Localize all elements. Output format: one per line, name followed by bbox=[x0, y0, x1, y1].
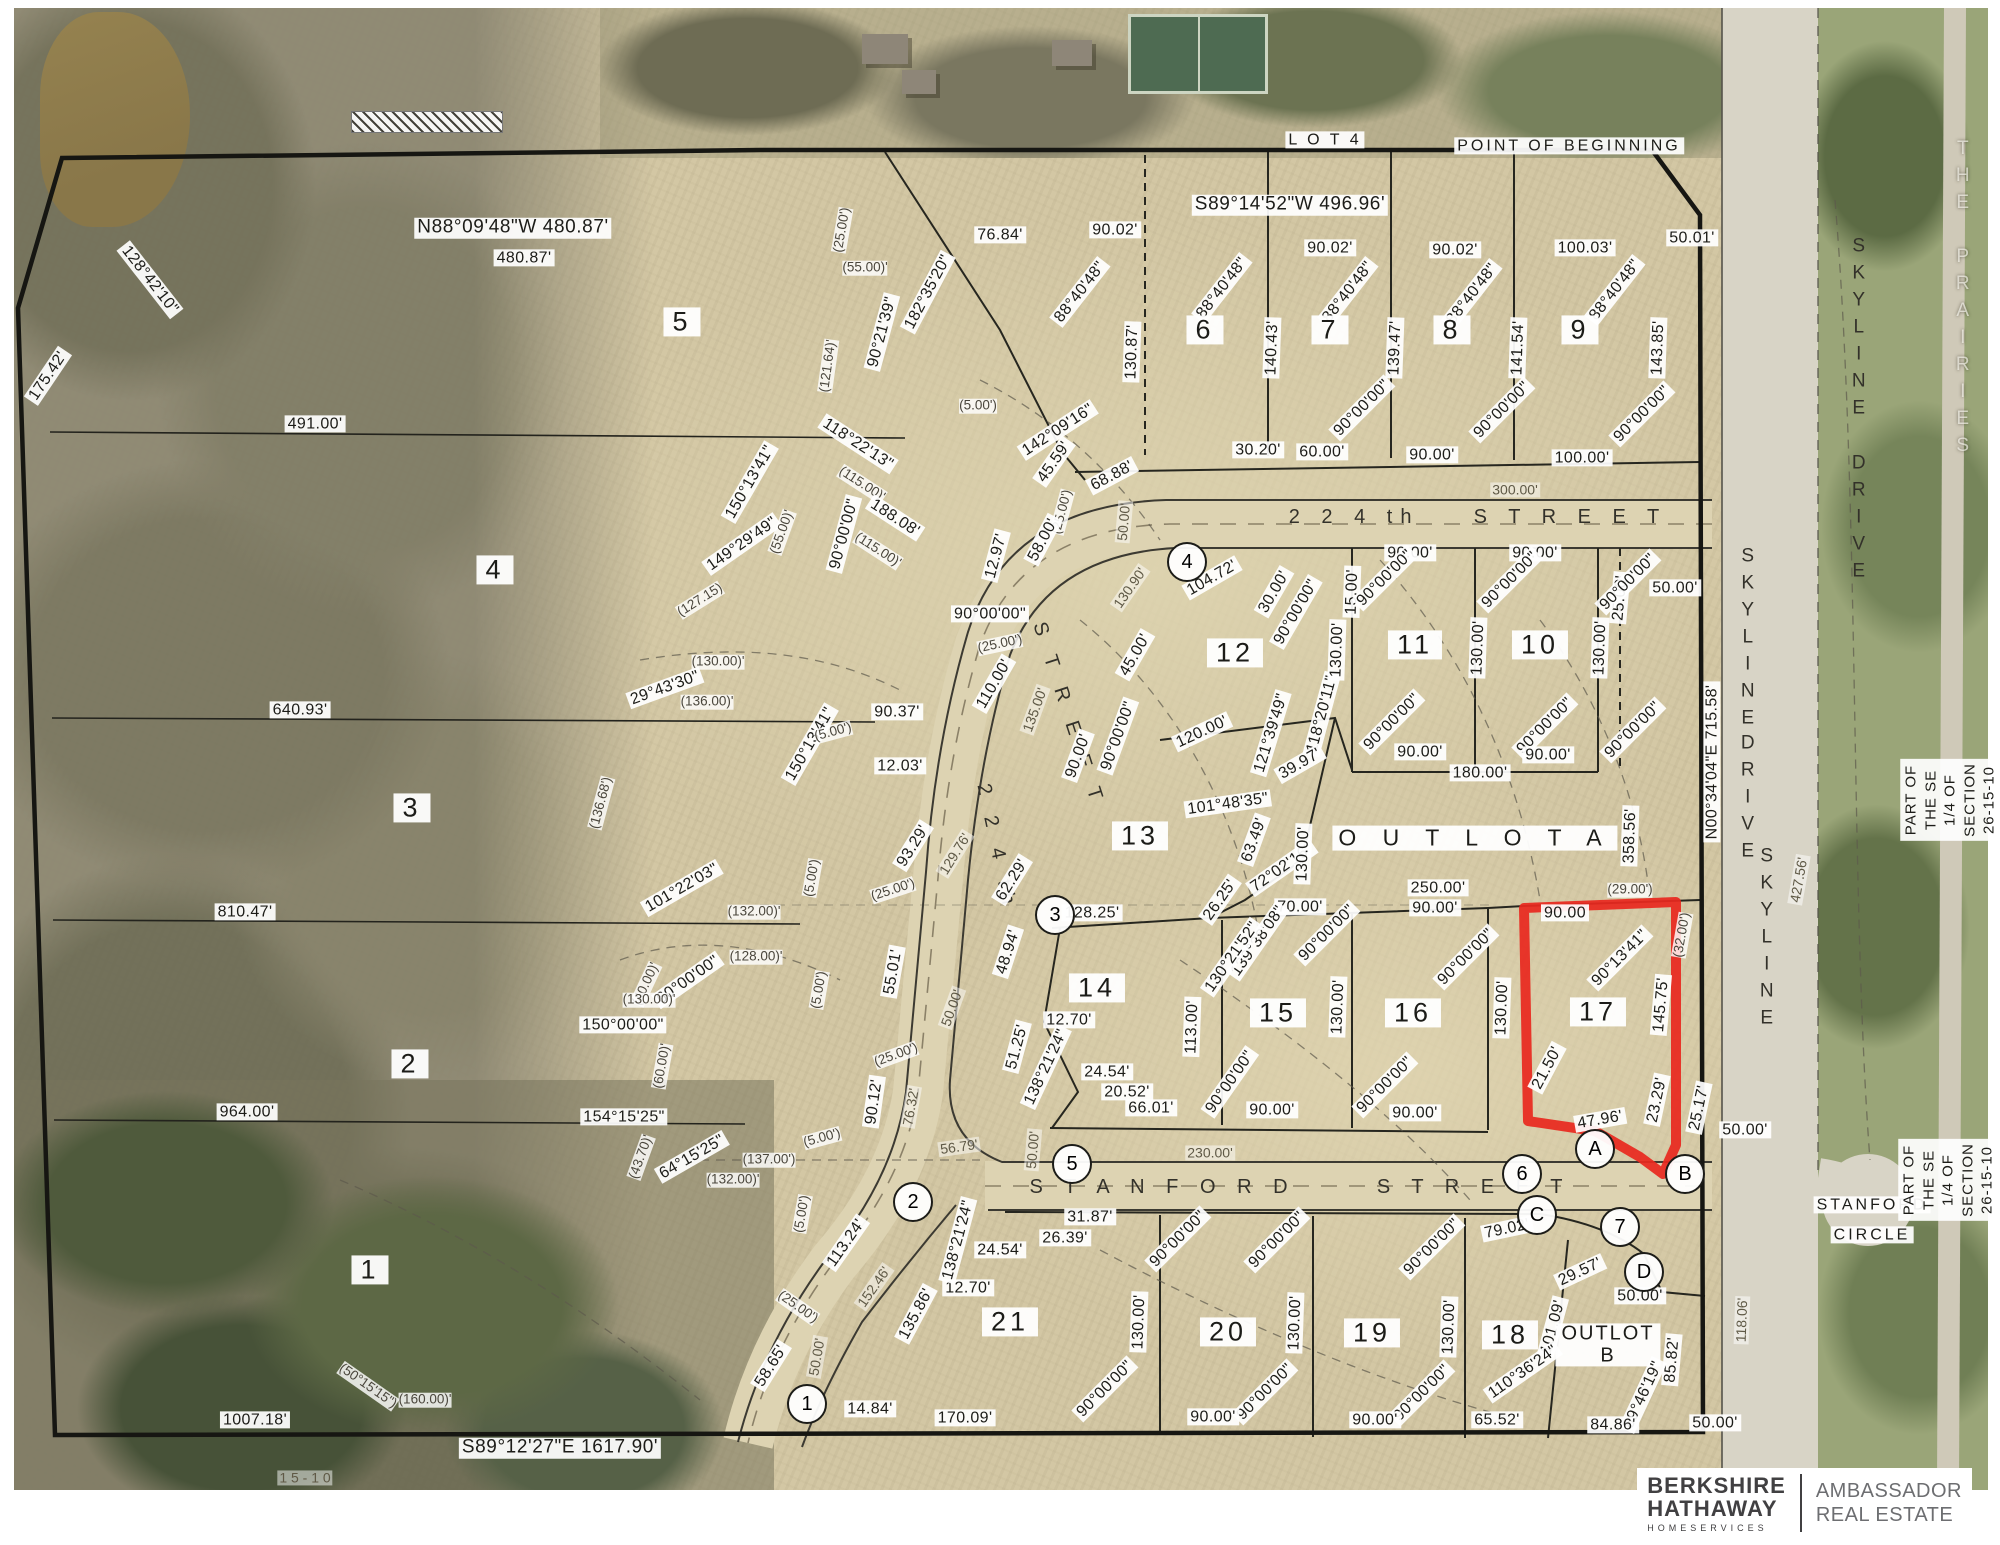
dimension-label: 100.00' bbox=[1552, 449, 1613, 466]
reference-dimension-label: (5.00') bbox=[959, 399, 997, 414]
dimension-label: 60.00' bbox=[1296, 443, 1348, 460]
dimension-label: 130.00' bbox=[1328, 976, 1347, 1037]
dimension-label: 31.87' bbox=[1064, 1208, 1116, 1225]
dimension-label: 90.00' bbox=[1522, 746, 1574, 763]
curve-marker-A: A bbox=[1575, 1129, 1615, 1169]
street-name: S T A N F O R D S T R E E T bbox=[1030, 1177, 1571, 1199]
lot-number: 7 bbox=[1311, 315, 1348, 344]
dimension-label: 491.00' bbox=[285, 415, 346, 432]
dimension-label: 90.02' bbox=[1429, 241, 1481, 258]
curve-marker-3: 3 bbox=[1035, 895, 1075, 935]
lot-number: 10 bbox=[1512, 630, 1568, 659]
bearing-label: S89°14'52"W 496.96' bbox=[1192, 195, 1388, 216]
lot-number: 2 bbox=[391, 1049, 428, 1078]
reference-dimension-label: (128.00)' bbox=[730, 950, 783, 965]
dimension-label: 14.84' bbox=[844, 1400, 896, 1417]
lot-number: 9 bbox=[1561, 315, 1598, 344]
dimension-label: 141.54' bbox=[1508, 317, 1527, 378]
curve-marker-6: 6 bbox=[1502, 1154, 1542, 1194]
faint-dimension-label: 1 5 - 1 0 bbox=[277, 1470, 332, 1485]
reference-dimension-label: (130.00)' bbox=[623, 993, 676, 1008]
map-annotation: CIRCLE bbox=[1831, 1226, 1914, 1243]
dimension-label: 20.52' bbox=[1101, 1083, 1153, 1100]
dimension-label: 130.00' bbox=[1285, 1292, 1304, 1353]
curve-marker-2: 2 bbox=[893, 1182, 933, 1222]
faint-dimension-label: 230.00' bbox=[1185, 1145, 1235, 1160]
lot-number: 16 bbox=[1385, 998, 1441, 1027]
map-annotation: L O T 4 bbox=[1285, 131, 1364, 148]
ambassador-real-estate-logo: AMBASSADOR REAL ESTATE bbox=[1816, 1479, 1962, 1527]
lot-number: 3 bbox=[393, 793, 430, 822]
dimension-label: 100.03' bbox=[1555, 239, 1616, 256]
faint-dimension-label: 118.06' bbox=[1734, 1296, 1751, 1345]
dimension-label: 130.00' bbox=[1468, 617, 1487, 678]
lot-number: 14 bbox=[1069, 973, 1125, 1002]
lot-number: 4 bbox=[476, 555, 513, 584]
dimension-label: 50.00' bbox=[1689, 1414, 1741, 1431]
dimension-label: 65.52' bbox=[1471, 1411, 1523, 1428]
dimension-label: 84.86' bbox=[1587, 1416, 1639, 1433]
logo-divider bbox=[1800, 1474, 1802, 1532]
dimension-label: 358.56' bbox=[1620, 805, 1639, 866]
curve-marker-B: B bbox=[1665, 1154, 1705, 1194]
reference-dimension-label: (55.00)' bbox=[842, 261, 887, 276]
logo-line1: BERKSHIRE bbox=[1647, 1474, 1786, 1497]
dimension-label: 12.03' bbox=[874, 757, 926, 774]
plat-map-stage: N88°09'48"W 480.87'480.87'S89°14'52"W 49… bbox=[0, 0, 2000, 1545]
dimension-label: 50.00' bbox=[1719, 1121, 1771, 1138]
outlot-label: OUTLOT B bbox=[1555, 1323, 1660, 1366]
dimension-label: 170.09' bbox=[935, 1409, 996, 1426]
dimension-label: 964.00' bbox=[217, 1103, 278, 1120]
curve-marker-C: C bbox=[1517, 1195, 1557, 1235]
dimension-label: 130.00' bbox=[1590, 617, 1609, 678]
section-label: PART OF THE SE 1/4 OF SECTION 26-15-10 bbox=[1898, 1139, 1998, 1221]
map-annotation: POINT OF BEGINNING bbox=[1454, 137, 1684, 154]
dimension-label: 12.70' bbox=[1043, 1011, 1095, 1028]
lot-number: 21 bbox=[982, 1307, 1038, 1336]
street-name-vertical: DRIVE bbox=[1737, 733, 1758, 868]
bearing-label: N88°09'48"W 480.87' bbox=[414, 218, 611, 239]
dimension-label: 30.20' bbox=[1232, 441, 1284, 458]
bearing-label: S89°12'27"E 1617.90' bbox=[459, 1438, 661, 1459]
dimension-label: 140.43' bbox=[1262, 317, 1281, 378]
street-name-vertical: SKYLINE bbox=[1737, 546, 1758, 735]
street-name-vertical: SKYLINE bbox=[1756, 846, 1777, 1035]
reference-dimension-label: (130.00)' bbox=[692, 655, 745, 670]
dimension-label: 113.00' bbox=[1182, 997, 1201, 1057]
dimension-label: 24.54' bbox=[974, 1241, 1026, 1258]
logo-right1: AMBASSADOR bbox=[1816, 1479, 1962, 1503]
lot-number: 8 bbox=[1433, 315, 1470, 344]
lot-number: 5 bbox=[663, 307, 700, 336]
dimension-label: 24.54' bbox=[1081, 1063, 1133, 1080]
lot-number: 11 bbox=[1388, 630, 1442, 659]
reference-dimension-label: (29.00') bbox=[1607, 883, 1652, 898]
dimension-label: 90.00' bbox=[1187, 1408, 1239, 1425]
street-name-vertical: SKYLINE bbox=[1848, 236, 1869, 425]
dimension-label: 150°00'00" bbox=[579, 1016, 666, 1033]
logo-right2: REAL ESTATE bbox=[1816, 1503, 1962, 1527]
street-name-vertical: DRIVE bbox=[1848, 453, 1869, 588]
dimension-label: 130.00' bbox=[1492, 977, 1511, 1038]
dimension-label: 130.87' bbox=[1122, 321, 1141, 382]
dimension-label: 90.00 bbox=[1541, 904, 1589, 921]
dimension-label: 90.00' bbox=[1394, 743, 1446, 760]
lot-number: 13 bbox=[1112, 821, 1168, 850]
dimension-label: 810.47' bbox=[215, 903, 276, 920]
dimension-label: 180.00' bbox=[1450, 764, 1511, 781]
dimension-label: 50.00' bbox=[1649, 579, 1701, 596]
dimension-label: 139.47' bbox=[1385, 317, 1404, 378]
section-label: PART OF THE SE 1/4 OF SECTION 26-15-10 bbox=[1900, 759, 2000, 841]
dimension-label: 90.02' bbox=[1089, 221, 1141, 238]
reference-dimension-label: (132.00)' bbox=[728, 905, 781, 920]
dimension-label: 90.00' bbox=[1409, 899, 1461, 916]
lot-number: 19 bbox=[1344, 1318, 1400, 1347]
dimension-label: 250.00' bbox=[1408, 879, 1469, 896]
dimension-label: 130.00' bbox=[1327, 619, 1346, 680]
dimension-label: 26.39' bbox=[1039, 1229, 1091, 1246]
curve-marker-D: D bbox=[1624, 1252, 1664, 1292]
dimension-label: N00°34'04"E 715.58' bbox=[1703, 682, 1720, 843]
berkshire-hathaway-logo: BERKSHIRE HATHAWAY HOMESERVICES bbox=[1647, 1474, 1786, 1533]
faint-dimension-label: 300.00' bbox=[1490, 482, 1540, 497]
dimension-label: 130.00' bbox=[1439, 1296, 1458, 1357]
curve-marker-7: 7 bbox=[1600, 1207, 1640, 1247]
reference-dimension-label: (160.00)' bbox=[399, 1393, 452, 1408]
dimension-label: 130.00' bbox=[1129, 1291, 1148, 1352]
dimension-label: 1007.18' bbox=[220, 1411, 290, 1428]
dimension-label: 90°00'00" bbox=[951, 605, 1029, 622]
dimension-label: 90.00' bbox=[1349, 1411, 1401, 1428]
dimension-label: 90.37' bbox=[871, 703, 923, 720]
brokerage-logo: BERKSHIRE HATHAWAY HOMESERVICES AMBASSAD… bbox=[1637, 1468, 1972, 1539]
dimension-label: 143.85' bbox=[1648, 317, 1667, 378]
curve-marker-5: 5 bbox=[1052, 1144, 1092, 1184]
lot-number: 1 bbox=[351, 1255, 388, 1284]
outlot-label: O U T L O T A bbox=[1332, 826, 1617, 851]
lot-number: 20 bbox=[1200, 1317, 1256, 1346]
lot-number: 12 bbox=[1207, 638, 1263, 667]
dimension-label: 640.93' bbox=[270, 701, 331, 718]
logo-line2: HATHAWAY bbox=[1647, 1497, 1786, 1520]
logo-line3: HOMESERVICES bbox=[1647, 1523, 1786, 1533]
dimension-label: 76.84' bbox=[974, 226, 1026, 243]
lot-number: 18 bbox=[1482, 1320, 1538, 1349]
dimension-label: 90.00' bbox=[1246, 1101, 1298, 1118]
dimension-label: 130.00' bbox=[1293, 823, 1312, 884]
dimension-label: 480.87' bbox=[494, 249, 555, 266]
lot-number: 15 bbox=[1250, 998, 1306, 1027]
reference-dimension-label: (137.00') bbox=[743, 1153, 796, 1168]
dimension-label: 90.00' bbox=[1406, 446, 1458, 463]
reference-dimension-label: (136.00)' bbox=[681, 695, 734, 710]
lot-number: 6 bbox=[1186, 315, 1223, 344]
reference-dimension-label: (132.00)' bbox=[707, 1173, 760, 1188]
curve-marker-1: 1 bbox=[787, 1384, 827, 1424]
lot-number: 17 bbox=[1570, 997, 1626, 1026]
curve-marker-4: 4 bbox=[1167, 542, 1207, 582]
trail-name: THE PRAIRIES bbox=[1952, 138, 1973, 462]
dimension-label: 50.01' bbox=[1666, 229, 1718, 246]
dimension-label: 154°15'25" bbox=[580, 1108, 667, 1125]
street-name: 2 2 4 th S T R E E T bbox=[1289, 507, 1668, 529]
dimension-label: 90.02' bbox=[1304, 239, 1356, 256]
dimension-label: 66.01' bbox=[1125, 1099, 1177, 1116]
dimension-label: 90.00' bbox=[1389, 1104, 1441, 1121]
